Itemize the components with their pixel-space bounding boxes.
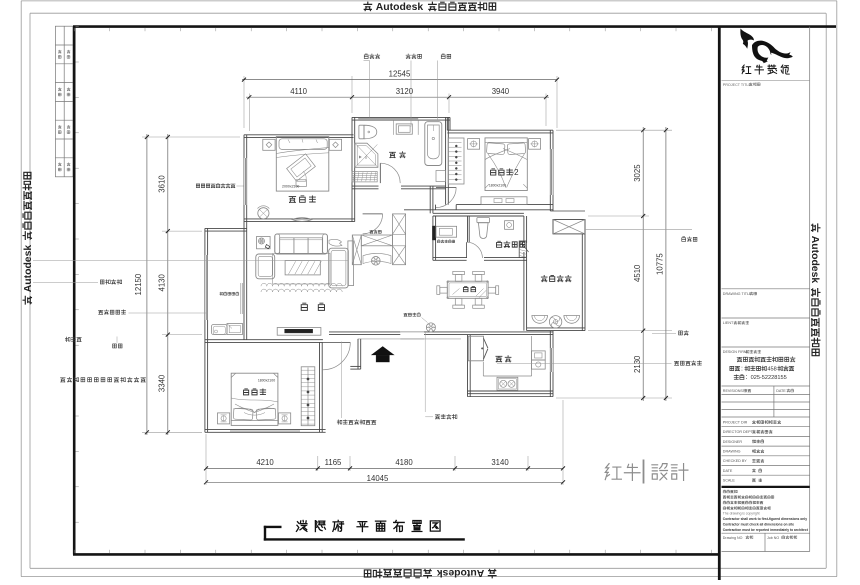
svg-text:DATE: DATE [776,389,786,393]
svg-text:DATE: DATE [723,469,733,473]
svg-text:4510: 4510 [633,264,642,282]
svg-text:2000x2100: 2000x2100 [282,185,299,189]
svg-text:4130: 4130 [157,273,166,291]
svg-text:Autodesk: Autodesk [809,236,820,284]
svg-text:1800x2100: 1800x2100 [489,184,506,188]
svg-text:12150: 12150 [134,273,143,295]
svg-text:Autodesk: Autodesk [23,245,34,293]
svg-text:Autodesk: Autodesk [437,567,485,578]
svg-text:Contractor must check all dime: Contractor must check all dimensions on … [723,522,794,526]
svg-text:DIRECTOR DEPT: DIRECTOR DEPT [723,430,754,434]
svg-text:DRAWING TITLE: DRAWING TITLE [723,292,752,296]
svg-text:DESIGNER: DESIGNER [723,440,743,444]
svg-text:2130: 2130 [633,355,642,373]
svg-text:：025-52228155: ：025-52228155 [745,375,787,381]
svg-text:PROJECT DIR: PROJECT DIR [723,420,748,424]
svg-text:Autodesk: Autodesk [376,2,424,13]
svg-text:The drawing is copyright: The drawing is copyright [723,512,760,516]
svg-text:DRAWING: DRAWING [723,450,741,454]
svg-text:10775: 10775 [656,253,665,275]
svg-text:1165: 1165 [325,458,342,467]
svg-text:14045: 14045 [367,474,389,483]
svg-text:458: 458 [767,366,776,372]
svg-text:Drawing NO: Drawing NO [723,536,743,540]
svg-text:Contraction must be reported i: Contraction must be reported immediately… [723,528,809,532]
svg-text:1800x2100: 1800x2100 [258,378,275,382]
svg-text:Contractor shall work to first: Contractor shall work to first-figured d… [723,517,807,521]
svg-text:DESIGN FIRM: DESIGN FIRM [723,350,747,354]
svg-text:REVISIONS: REVISIONS [723,389,744,393]
svg-text:CHECKED BY: CHECKED BY [723,459,748,463]
svg-text:SCALE: SCALE [723,479,736,483]
svg-text:2: 2 [514,168,519,177]
svg-text:3025: 3025 [633,164,642,182]
svg-text:4110: 4110 [290,87,307,96]
svg-text:PROJECT TITLE: PROJECT TITLE [723,83,752,87]
svg-text:3340: 3340 [157,374,166,392]
svg-text:3940: 3940 [492,87,510,96]
svg-text:Job NO: Job NO [767,536,779,540]
svg-text:4210: 4210 [256,458,274,467]
svg-text:4180: 4180 [395,458,413,467]
svg-text:3610: 3610 [157,175,166,193]
svg-text:3140: 3140 [491,458,509,467]
svg-text:LIENT: LIENT [723,321,734,325]
svg-text:12545: 12545 [389,70,411,79]
